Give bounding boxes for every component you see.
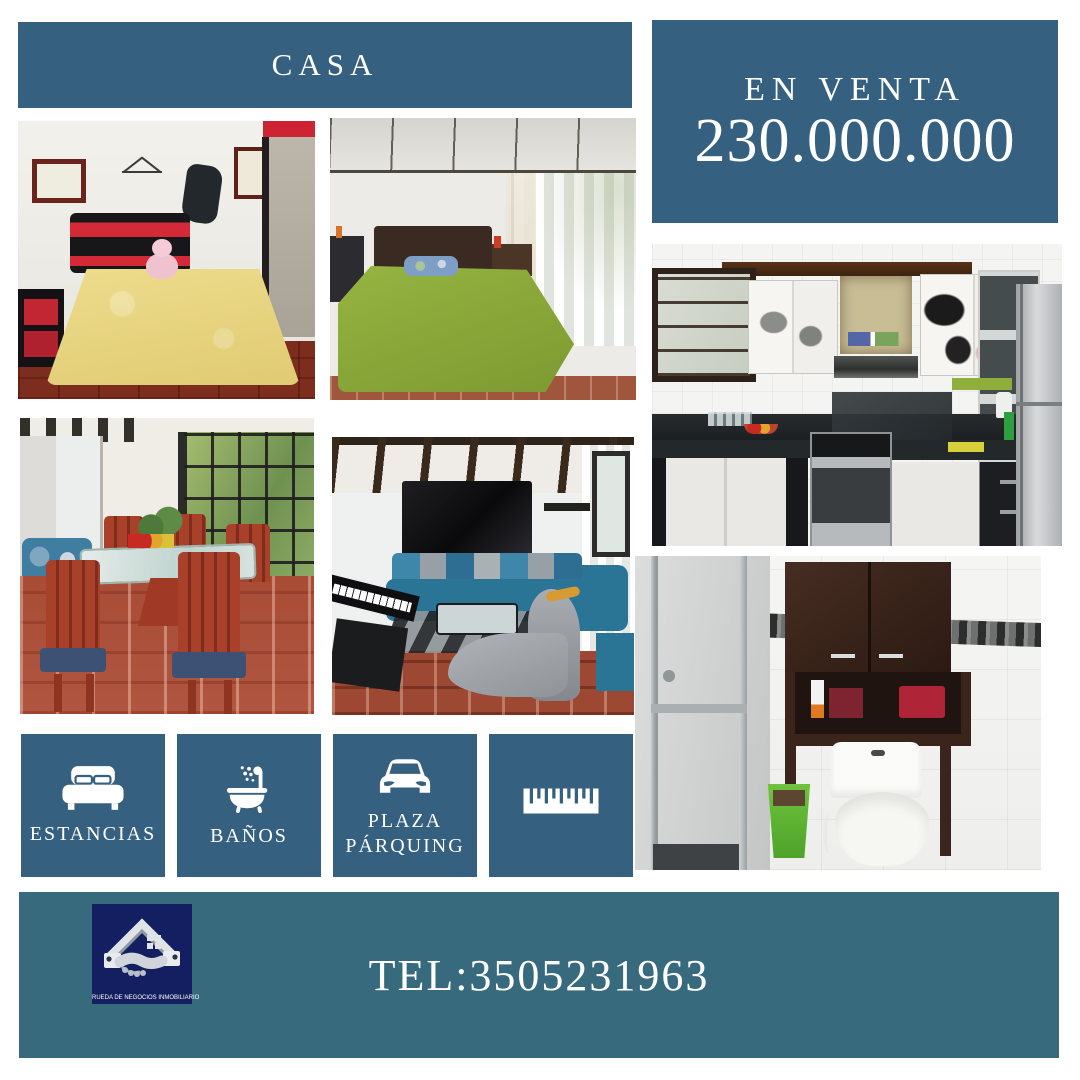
sale-label: EN VENTA [744, 71, 966, 109]
feature-box-parking: PLAZA PÁRQUING [333, 734, 477, 877]
wall-tv [402, 481, 532, 557]
shower-towel-bar [651, 704, 747, 713]
phone-number: TEL:3505231963 [369, 950, 710, 1001]
red-box [829, 688, 863, 718]
photo-bathroom [635, 556, 1041, 870]
clothes-hanger [122, 155, 162, 173]
blue-ottoman [596, 633, 634, 691]
photo-living-room [332, 437, 634, 715]
fruit-bowl [744, 424, 778, 434]
green-bottle [1004, 412, 1014, 440]
teddy-bear-head [152, 239, 172, 257]
lower-cabinets-left [652, 458, 808, 546]
logo-caption: RUEDA DE NEGOCIOS INMOBILIARIO [92, 995, 192, 1001]
feature-label: BAÑOS [210, 824, 288, 849]
shower-handle [663, 670, 675, 682]
page-title: CASA [272, 47, 379, 83]
feature-box-rooms: ESTANCIAS [21, 734, 165, 877]
toilet-tank [831, 742, 921, 798]
bathtub-shower-icon [218, 762, 280, 814]
feature-label: ESTANCIAS [30, 822, 156, 847]
shelf-items [848, 332, 904, 346]
upper-cabinet-cow-print [748, 280, 838, 374]
over-toilet-cabinet [785, 562, 951, 672]
photo-dining-room [20, 418, 314, 714]
wall-shelf [544, 503, 590, 511]
chair-legs [54, 674, 94, 712]
shower-frame-bar [739, 556, 747, 870]
ruler-icon [521, 783, 601, 819]
fruit-bowl [128, 534, 174, 548]
stainless-fridge [1016, 284, 1062, 546]
kitchen-window [652, 268, 756, 382]
coffee-table [436, 603, 518, 635]
stainless-stove [810, 432, 892, 546]
ceiling-grid [330, 118, 636, 173]
shower-frame-bar [651, 556, 658, 870]
bed-yellow-spread [46, 269, 300, 385]
house-handshake-icon [92, 904, 192, 1004]
price-value: 230.000.000 [695, 109, 1016, 173]
agency-logo: RUEDA DE NEGOCIOS INMOBILIARIO [92, 904, 192, 1004]
footer-banner: RUEDA DE NEGOCIOS INMOBILIARIO TEL:35052… [19, 892, 1059, 1058]
bottle [811, 680, 824, 718]
wall-frame [32, 159, 86, 203]
car-icon [371, 753, 439, 799]
photo-bedroom-1 [18, 121, 315, 399]
range-hood [834, 356, 918, 378]
bed-icon [57, 764, 129, 812]
red-basket [899, 686, 945, 718]
feature-label: PLAZA PÁRQUING [340, 809, 470, 859]
dining-chair [178, 552, 240, 656]
dining-chair [46, 560, 100, 652]
green-decor-row [952, 378, 1012, 390]
toilet-bowl [835, 792, 929, 866]
chair-legs [188, 680, 232, 714]
cabinet-leg [940, 734, 951, 856]
pillow [404, 256, 458, 276]
yellow-cloth [948, 442, 984, 452]
countertop-left [652, 440, 812, 458]
feature-box-baths: BAÑOS [177, 734, 321, 877]
title-banner: CASA [18, 22, 632, 108]
real-estate-flyer: CASA EN VENTA 230.000.000 [0, 0, 1080, 1080]
feature-box-size [489, 734, 633, 877]
green-trash-bin [765, 784, 813, 858]
price-box: EN VENTA 230.000.000 [652, 20, 1058, 223]
window-frame [592, 451, 630, 557]
shower-base [653, 844, 739, 870]
photo-kitchen [652, 244, 1062, 546]
speaker-box [332, 618, 408, 691]
photo-bedroom-2 [330, 118, 636, 400]
